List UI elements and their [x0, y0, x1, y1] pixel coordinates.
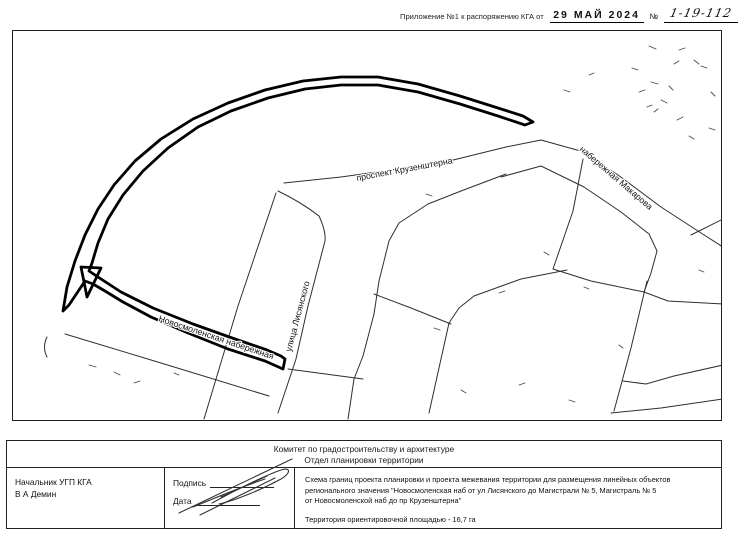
signature-rule	[210, 478, 274, 488]
description-cell: Схема границ проекта планировки и проект…	[295, 468, 721, 528]
approval-number-sign: №	[650, 12, 659, 23]
org-line2: Отдел планировки территории	[7, 455, 721, 466]
description-line2: регионального значения "Новосмоленская н…	[305, 486, 711, 497]
page-root: Приложение №1 к распоряжению КГА от 29 М…	[0, 0, 743, 548]
street-label-makarova: набережная Макарова	[578, 144, 655, 212]
description-line3: от Новосмоленской наб до пр Крузенштерна…	[305, 496, 711, 507]
description-line1: Схема границ проекта планировки и проект…	[305, 475, 711, 486]
street-label-novosmolenskaya: Новосмоленская набережная	[157, 313, 275, 361]
org-header: Комитет по градостроительству и архитект…	[7, 441, 721, 468]
approval-number-value: 1-19-112	[669, 6, 734, 20]
street-label-kruzenshterna: проспект Крузенштерна	[356, 155, 454, 183]
map-svg: проспект Крузенштерна набережная Макаров…	[13, 31, 721, 420]
signature-cell: Подпись Дата	[165, 468, 295, 528]
vegetation-marks	[89, 46, 715, 402]
map-frame: проспект Крузенштерна набережная Макаров…	[12, 30, 722, 421]
org-line1: Комитет по градостроительству и архитект…	[7, 444, 721, 455]
approval-label: Приложение №1 к распоряжению КГА от	[400, 12, 544, 23]
date-rule	[196, 496, 260, 506]
title-block-row: Начальник УГП КГА В А Демин Подпись Дата…	[7, 468, 721, 528]
approval-date-stamp: 29 МАЙ 2024	[550, 9, 644, 23]
official-position: Начальник УГП КГА	[15, 476, 164, 488]
signature-label: Подпись	[173, 478, 206, 488]
date-label: Дата	[173, 496, 192, 506]
street-label-lisyanskogo: улица Лисянского	[283, 280, 311, 353]
area-line: Территория ориентировочной площадью - 16…	[305, 515, 711, 526]
official-name: В А Демин	[15, 488, 164, 500]
official-cell: Начальник УГП КГА В А Демин	[7, 468, 165, 528]
approval-number-field: 1-19-112	[664, 4, 738, 23]
title-block: Комитет по градостроительству и архитект…	[6, 440, 722, 529]
approval-note: Приложение №1 к распоряжению КГА от 29 М…	[400, 4, 738, 23]
